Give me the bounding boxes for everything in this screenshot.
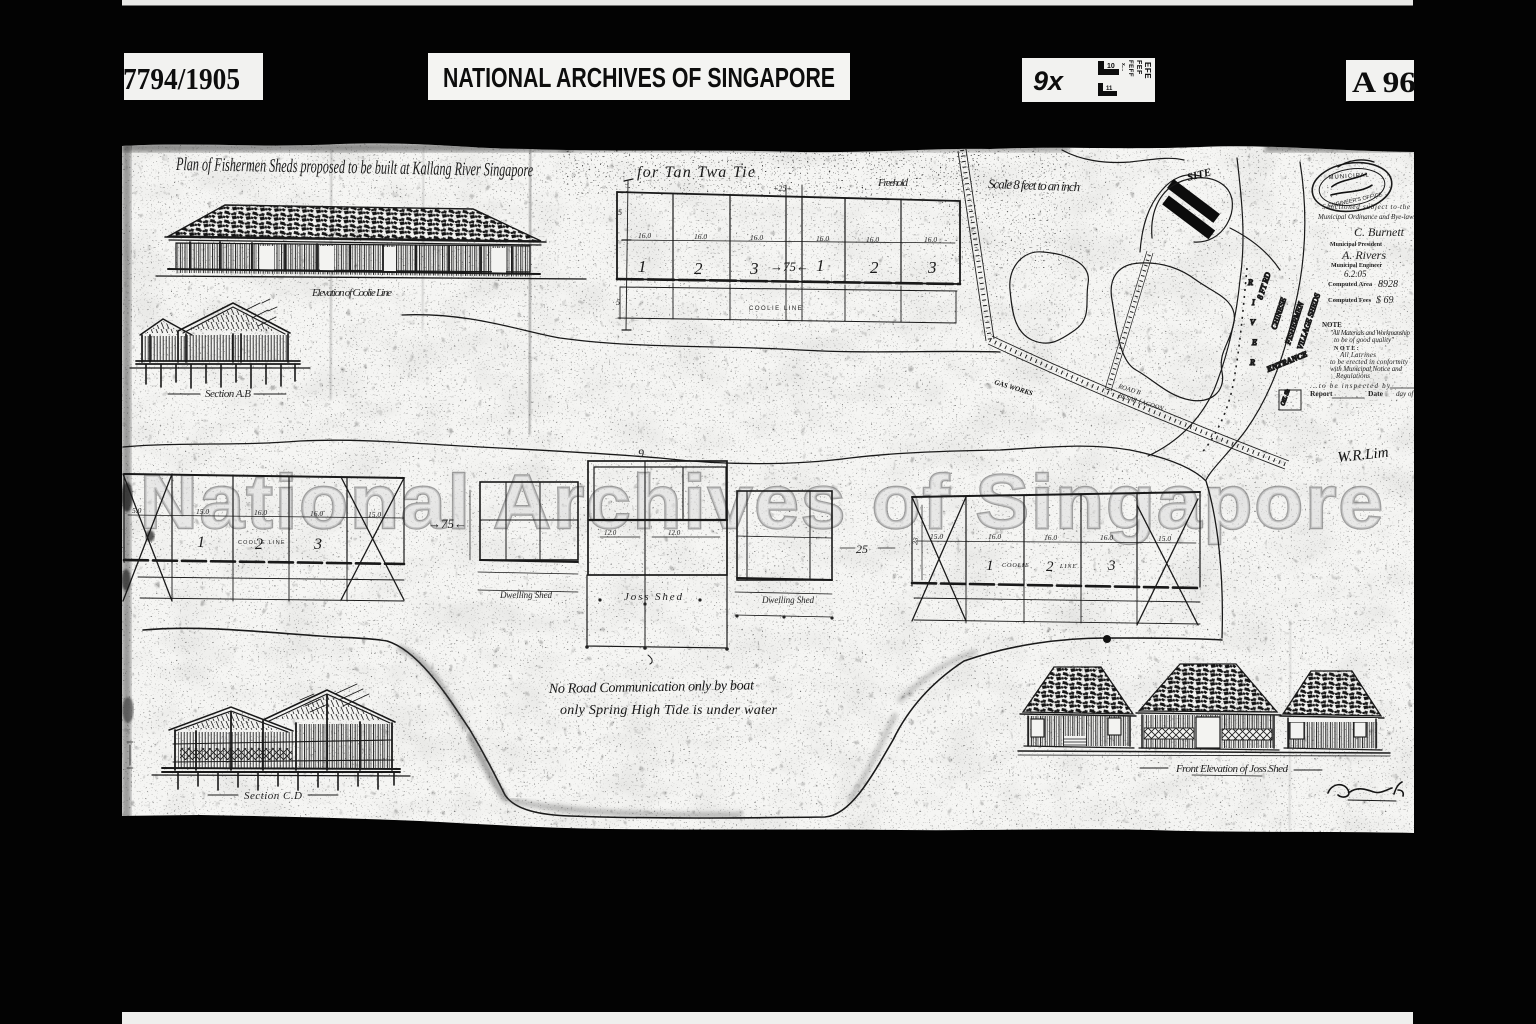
svg-text:11: 11: [1106, 86, 1113, 92]
svg-text:16.0: 16.0: [816, 234, 829, 243]
svg-text:Date: Date: [1368, 389, 1384, 398]
svg-text:16.0: 16.0: [924, 235, 937, 244]
svg-text:1: 1: [638, 257, 647, 276]
svg-text:3: 3: [1107, 558, 1116, 574]
svg-text:5: 5: [618, 208, 622, 217]
svg-text:15.0: 15.0: [930, 532, 943, 541]
svg-text:National Archives of Singapore: National Archives of Singapore: [140, 460, 1385, 545]
svg-text:15.0: 15.0: [1158, 534, 1171, 543]
svg-text:3: 3: [749, 259, 759, 278]
svg-text:2: 2: [694, 259, 703, 278]
svg-text:1: 1: [986, 558, 994, 574]
svg-text:→75←: →75←: [428, 516, 467, 531]
svg-text:for Tan Twa Tie: for Tan Twa Tie: [637, 164, 755, 181]
svg-text:Section A.B: Section A.B: [205, 388, 251, 400]
svg-text:16.0: 16.0: [310, 509, 323, 518]
svg-text:E: E: [1251, 338, 1257, 347]
svg-text:C. Burnett: C. Burnett: [1354, 225, 1405, 239]
svg-text:NATIONAL ARCHIVES OF SINGAPORE: NATIONAL ARCHIVES OF SINGAPORE: [443, 62, 835, 93]
svg-text:16.0: 16.0: [988, 532, 1001, 541]
svg-text:5: 5: [616, 298, 620, 307]
svg-text:→75←: →75←: [770, 259, 809, 274]
svg-text:16.0: 16.0: [694, 232, 707, 241]
svg-text:16.0: 16.0: [638, 231, 651, 240]
svg-text:Municipal Ordinance and Bye-la: Municipal Ordinance and Bye-laws.: [1317, 213, 1418, 221]
svg-text:COOLIE LINE: COOLIE LINE: [749, 306, 803, 312]
svg-text:Computed Area: Computed Area: [1328, 281, 1373, 288]
svg-text:x....: x....: [1120, 63, 1126, 72]
svg-text:Front Elevation of Joss Shed: Front Elevation of Joss Shed: [1175, 763, 1289, 775]
svg-text:16.0: 16.0: [1100, 533, 1113, 542]
svg-text:16.0: 16.0: [1044, 533, 1057, 542]
svg-text:6.2.05: 6.2.05: [1344, 269, 1367, 279]
svg-text:LINE: LINE: [1059, 564, 1077, 570]
svg-text:Dwelling Shed: Dwelling Shed: [761, 595, 815, 605]
svg-text:COOLIE: COOLIE: [1002, 563, 1030, 569]
svg-text:8928: 8928: [1378, 279, 1398, 290]
svg-text:Report: Report: [1310, 389, 1333, 398]
svg-text:Freehold: Freehold: [877, 177, 909, 189]
svg-text:+25+: +25+: [773, 184, 792, 193]
svg-text:7794/1905: 7794/1905: [123, 61, 240, 96]
svg-text:COOLIE LINE: COOLIE LINE: [238, 540, 286, 546]
svg-text:$ 69: $ 69: [1376, 295, 1394, 306]
svg-text:3: 3: [927, 258, 937, 277]
svg-text:25: 25: [856, 542, 868, 556]
svg-text:16.0: 16.0: [254, 508, 267, 517]
svg-text:12.0: 12.0: [604, 529, 617, 537]
svg-text:I: I: [1251, 298, 1255, 307]
svg-text:to be of good quality": to be of good quality": [1334, 336, 1394, 344]
svg-text:only Spring High Tide is unde: only Spring High Tide is under water: [560, 703, 778, 718]
svg-text:Elevation of Coolie Line: Elevation of Coolie Line: [311, 287, 392, 299]
svg-text:R: R: [1249, 358, 1255, 367]
svg-text:2: 2: [1046, 559, 1054, 575]
svg-text:A 96: A 96: [1352, 66, 1416, 99]
svg-text:Computed Fees: Computed Fees: [1328, 297, 1372, 304]
svg-text:EFE: EFE: [1143, 62, 1152, 79]
svg-text:9x: 9x: [1033, 66, 1064, 96]
svg-text:9: 9: [638, 446, 644, 460]
svg-text:15.0: 15.0: [368, 510, 381, 519]
svg-text:FEFF: FEFF: [1127, 60, 1133, 77]
svg-text:Sanctioned subject to the: Sanctioned subject to the: [1322, 203, 1410, 211]
svg-text:R: R: [1247, 278, 1253, 287]
svg-text:day of: day of: [1396, 390, 1414, 398]
svg-text:16.0: 16.0: [866, 235, 879, 244]
svg-text:1: 1: [197, 534, 205, 551]
svg-text:15.0: 15.0: [196, 507, 209, 516]
svg-text:16.0: 16.0: [750, 233, 763, 242]
svg-text:12.0: 12.0: [668, 529, 681, 537]
svg-text:3: 3: [313, 536, 322, 553]
svg-text:10: 10: [1107, 63, 1115, 70]
svg-text:Section C.D: Section C.D: [244, 790, 302, 802]
svg-text:A. Rivers: A. Rivers: [1341, 248, 1386, 262]
svg-text:Regulations: Regulations: [1335, 372, 1370, 380]
svg-text:FEF: FEF: [1135, 60, 1142, 75]
svg-text:NOTE: NOTE: [1322, 321, 1342, 329]
svg-text:Dwelling Shed: Dwelling Shed: [499, 590, 553, 600]
svg-text:2: 2: [870, 258, 879, 277]
svg-text:1: 1: [816, 256, 825, 275]
svg-text:Scale 8 feet to an inch: Scale 8 feet to an inch: [988, 176, 1080, 194]
